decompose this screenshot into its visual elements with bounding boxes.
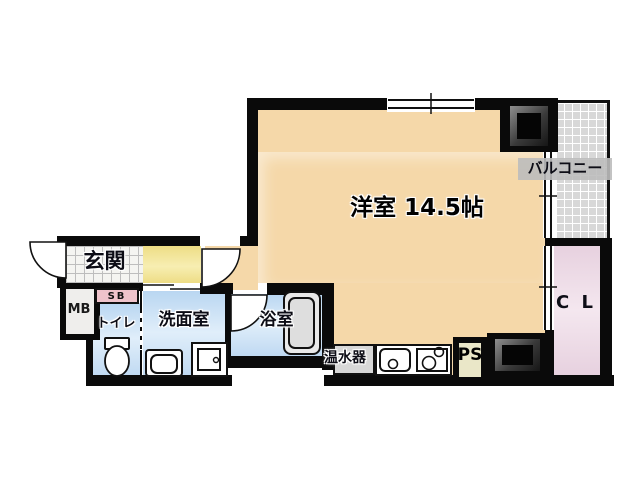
floor-plan: 洋室 14.5帖 バルコニー C L 玄関 洗面室 浴室 トイレ 温水器 PS … bbox=[0, 0, 640, 480]
pillar-bottom-right bbox=[487, 333, 548, 377]
bathroom-label: 浴室 bbox=[231, 311, 322, 330]
toilet-tank bbox=[104, 337, 130, 350]
kitchen-stove bbox=[416, 348, 448, 372]
water-heater-label: 温水器 bbox=[312, 351, 378, 366]
wall-toilet-washroom-divider bbox=[140, 291, 142, 377]
toilet-label: トイレ bbox=[91, 317, 141, 331]
entrance-label: 玄関 bbox=[66, 250, 143, 273]
hallway-floor bbox=[143, 246, 201, 283]
closet-sliding-door bbox=[543, 246, 554, 330]
wall-closet-top bbox=[545, 238, 612, 246]
pillar-top-right bbox=[500, 98, 558, 152]
wall-left bbox=[247, 98, 258, 246]
closet-label: C L bbox=[550, 293, 602, 313]
window-top bbox=[387, 96, 475, 112]
meter-box-label: MB bbox=[60, 303, 98, 317]
main-room-floor bbox=[334, 283, 545, 333]
wall-top-right bbox=[472, 98, 502, 110]
shoe-box-label: SB bbox=[95, 291, 139, 302]
main-room-label: 洋室 14.5帖 bbox=[307, 196, 527, 221]
wall-entrance-top-east bbox=[240, 236, 258, 246]
washroom-label: 洗面室 bbox=[143, 311, 225, 330]
pipe-space-label: PS bbox=[450, 346, 490, 365]
wall-entrance-top-west bbox=[57, 236, 200, 246]
main-room-floor bbox=[258, 107, 500, 153]
wall-washroom-north bbox=[200, 283, 233, 294]
balcony-label: バルコニー bbox=[518, 160, 612, 177]
wall-top-left bbox=[247, 98, 390, 110]
washing-machine-drum bbox=[150, 354, 178, 374]
kitchen-sink bbox=[379, 348, 411, 372]
vanity-door bbox=[197, 348, 221, 371]
washroom-sliding-door bbox=[143, 283, 200, 291]
